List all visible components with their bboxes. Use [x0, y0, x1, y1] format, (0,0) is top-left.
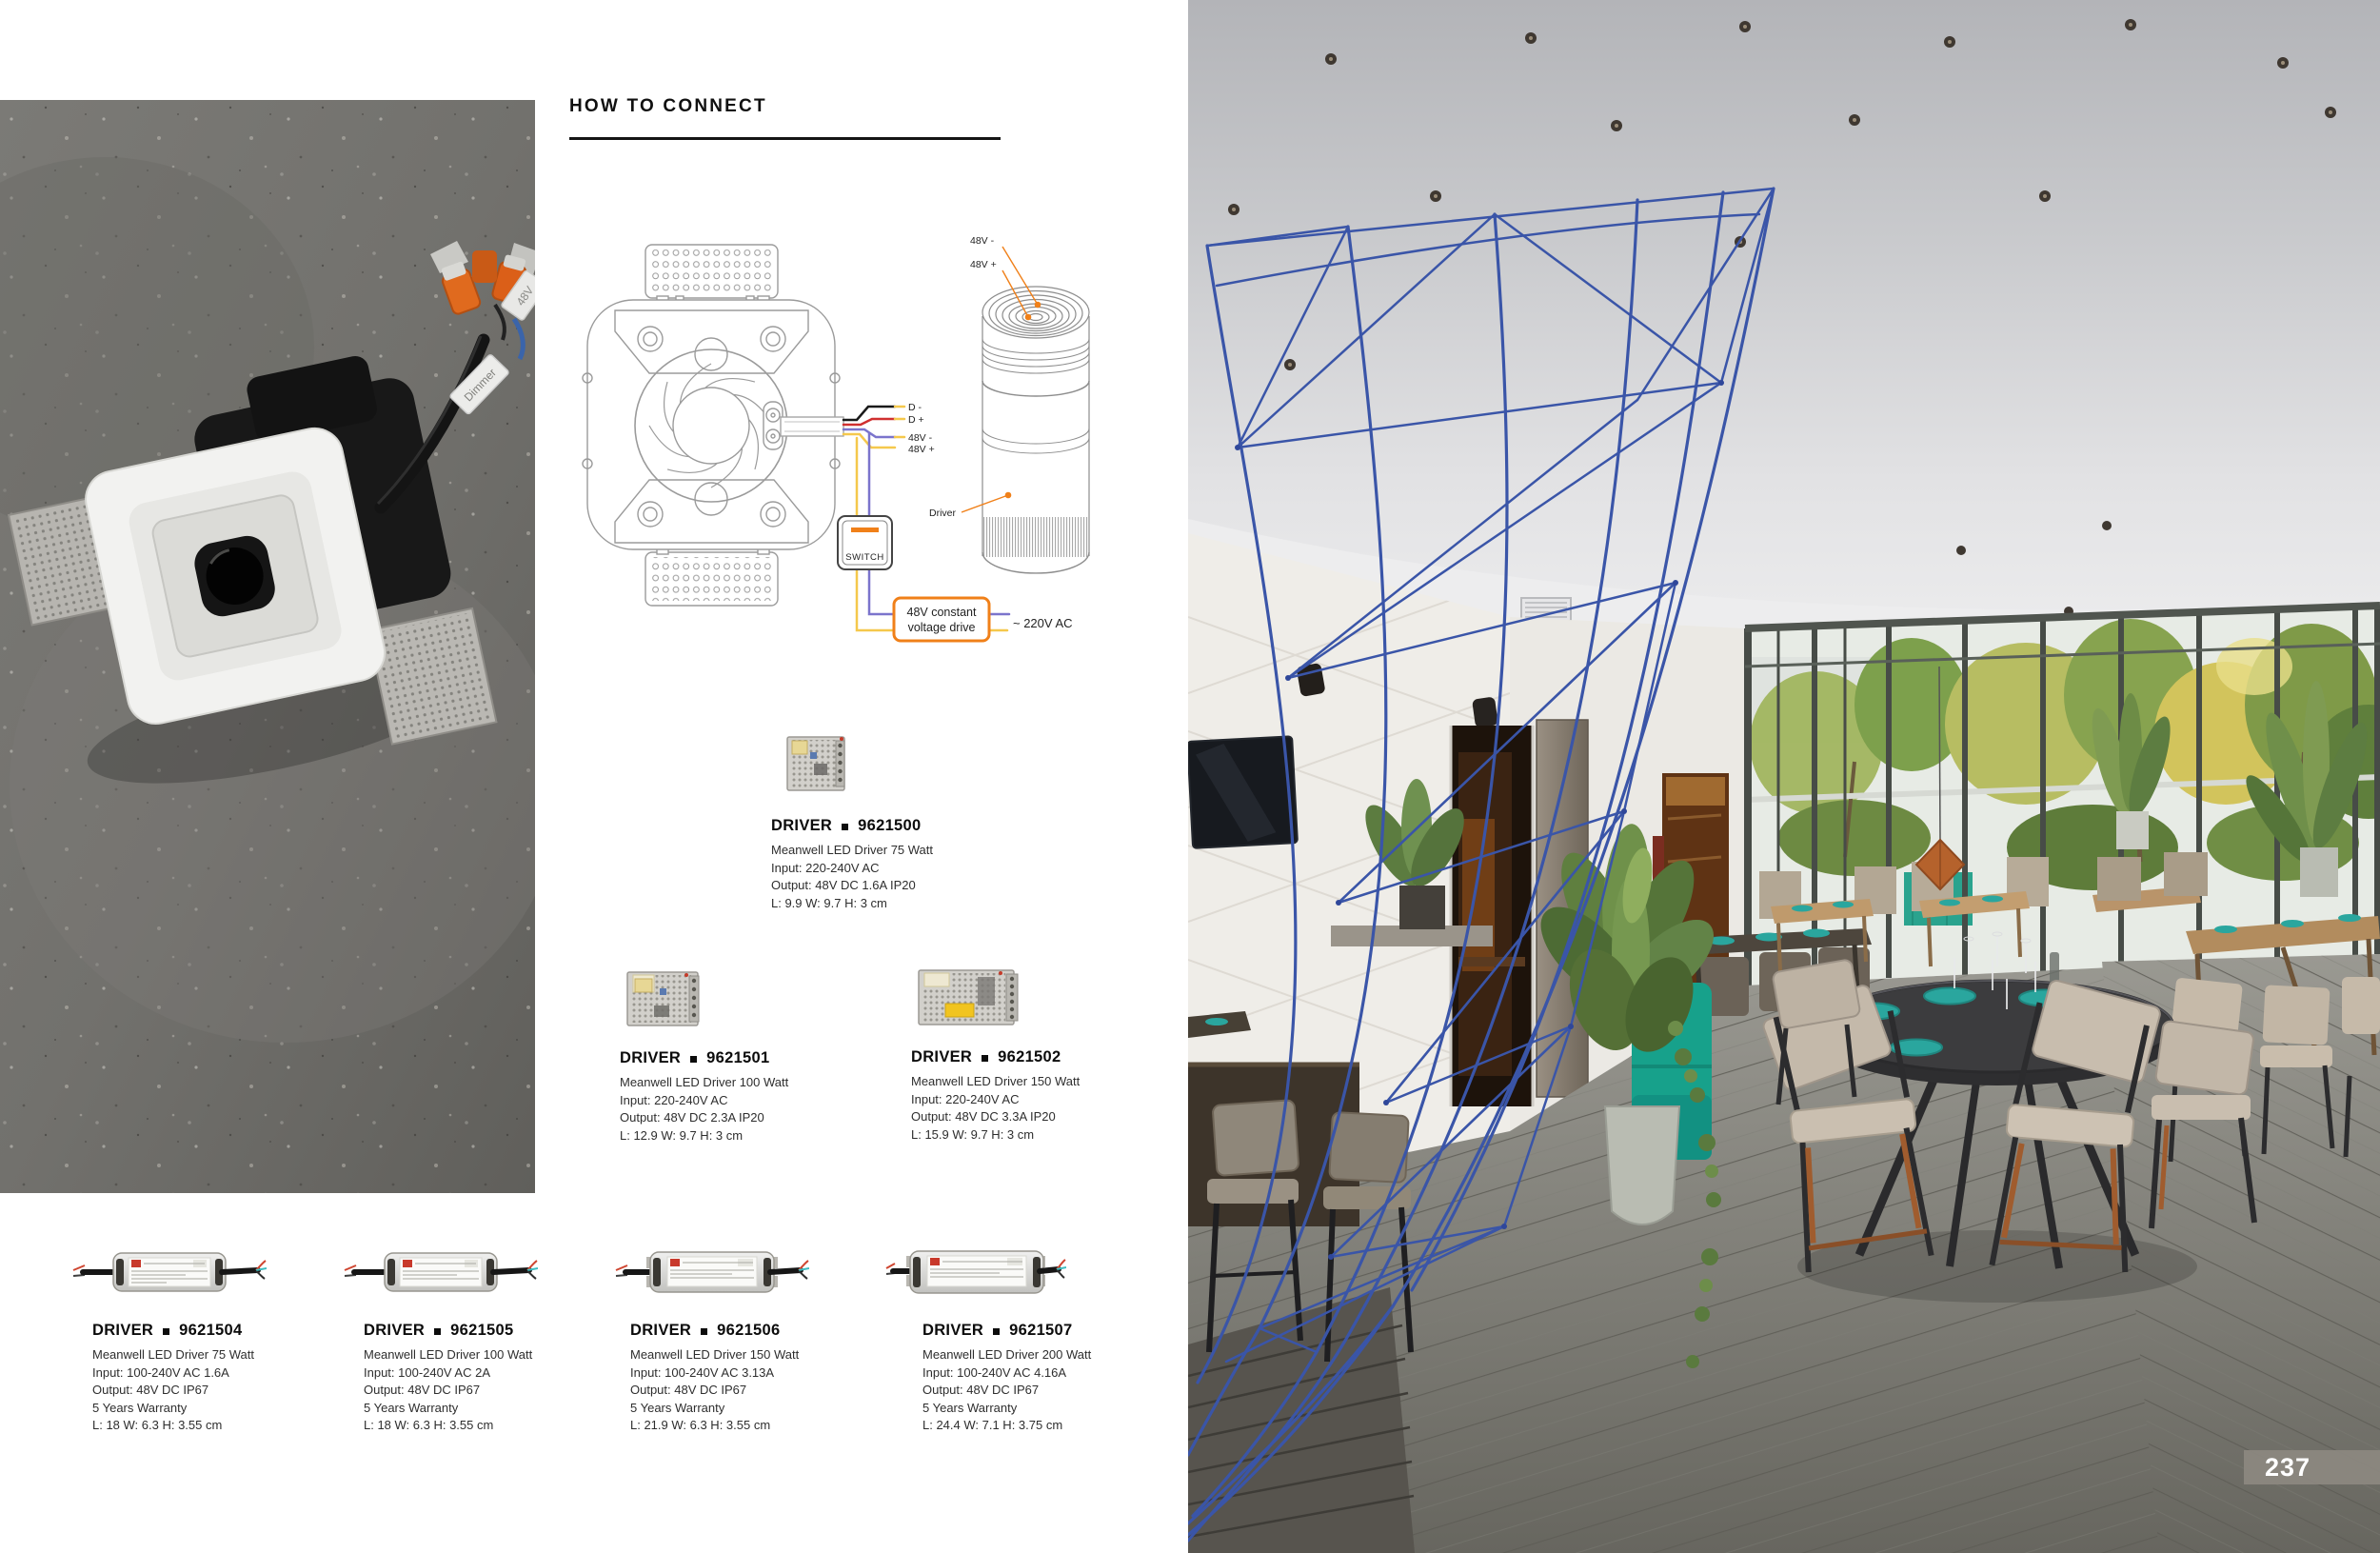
- driver-card-9621502: DRIVER9621502 Meanwell LED Driver 150 Wa…: [911, 966, 1130, 1144]
- driver-specs: Meanwell LED Driver 100 WattInput: 100-2…: [364, 1346, 562, 1435]
- driver-photo-open-frame: [917, 966, 1021, 1029]
- driver-specs: Meanwell LED Driver 100 WattInput: 220-2…: [620, 1074, 839, 1145]
- callout-leaders: 48V - 48V + Driver: [929, 235, 1041, 519]
- wire-label-d-plus: D +: [908, 414, 924, 426]
- driver-title: DRIVER9621507: [922, 1322, 1104, 1340]
- driver-photo-open-frame: [625, 967, 705, 1030]
- driver-title: DRIVER9621505: [364, 1322, 562, 1340]
- svg-text:SWITCH: SWITCH: [845, 552, 883, 563]
- separator-dot: [982, 1055, 988, 1062]
- driver-photo-enclosed: [614, 1247, 809, 1297]
- product-photo: 48V Dimmer: [0, 100, 535, 1193]
- driver-photo-open-frame: [785, 731, 850, 796]
- svg-text:voltage drive: voltage drive: [908, 621, 976, 634]
- driver-callout-label: Driver: [929, 508, 957, 519]
- catalog-page: 48V Dimmer HOW TO CONNECT: [0, 0, 2380, 1553]
- separator-dot: [434, 1328, 441, 1335]
- driver-title: DRIVER9621501: [620, 1049, 839, 1067]
- separator-dot: [993, 1328, 1000, 1335]
- separator-dot: [701, 1328, 707, 1335]
- separator-dot: [690, 1056, 697, 1063]
- page-number: 237: [2265, 1453, 2311, 1483]
- section-title: HOW TO CONNECT: [569, 96, 767, 117]
- driver-card-9621507: DRIVER9621507 Meanwell LED Driver 200 Wa…: [885, 1245, 1104, 1435]
- wiring-diagram: D - D + 48V - 48V + SWITCH 48V constant …: [569, 143, 1140, 676]
- driver-specs: Meanwell LED Driver 75 WattInput: 100-24…: [92, 1346, 290, 1435]
- driver-card-9621504: DRIVER9621504 Meanwell LED Driver 75 Wat…: [71, 1249, 290, 1435]
- svg-text:48V -: 48V -: [970, 235, 995, 247]
- driver-photo-enclosed: [885, 1245, 1066, 1297]
- svg-text:48V constant: 48V constant: [907, 606, 977, 619]
- wire-label-d-minus: D -: [908, 402, 922, 413]
- driver-title: DRIVER9621502: [911, 1048, 1130, 1066]
- luminaire-drawing: [583, 245, 843, 606]
- driver-card-9621506: DRIVER9621506 Meanwell LED Driver 150 Wa…: [614, 1247, 833, 1435]
- wire-label-48v-plus: 48V +: [908, 444, 935, 455]
- svg-text:48V +: 48V +: [970, 259, 997, 270]
- interior-photo: [1188, 0, 2380, 1553]
- driver-specs: Meanwell LED Driver 150 WattInput: 220-2…: [911, 1073, 1130, 1144]
- page-number-badge: 237: [2244, 1450, 2380, 1484]
- switch-symbol: SWITCH: [838, 516, 892, 569]
- driver-card-9621500: DRIVER9621500 Meanwell LED Driver 75 Wat…: [771, 731, 990, 912]
- driver-specs: Meanwell LED Driver 200 WattInput: 100-2…: [922, 1346, 1104, 1435]
- psu-symbol: 48V constant voltage drive: [894, 598, 989, 641]
- wall-speaker: [1472, 696, 1498, 727]
- driver-photo-enclosed: [71, 1249, 267, 1297]
- tv-screen: [1188, 736, 1298, 848]
- driver-specs: Meanwell LED Driver 75 WattInput: 220-24…: [771, 842, 990, 912]
- driver-photo-enclosed: [343, 1249, 538, 1297]
- separator-dot: [842, 824, 848, 830]
- driver-title: DRIVER9621500: [771, 817, 990, 835]
- section-title-rule: [569, 137, 1001, 140]
- driver-card-9621505: DRIVER9621505 Meanwell LED Driver 100 Wa…: [343, 1249, 562, 1435]
- driver-title: DRIVER9621504: [92, 1322, 290, 1340]
- driver-title: DRIVER9621506: [630, 1322, 833, 1340]
- separator-dot: [163, 1328, 169, 1335]
- driver-card-9621501: DRIVER9621501 Meanwell LED Driver 100 Wa…: [620, 967, 839, 1145]
- wire-label-48v-minus: 48V -: [908, 432, 933, 444]
- led-module-drawing: [982, 287, 1089, 573]
- mains-label: ~ 220V AC: [1013, 616, 1073, 630]
- driver-specs: Meanwell LED Driver 150 WattInput: 100-2…: [630, 1346, 833, 1435]
